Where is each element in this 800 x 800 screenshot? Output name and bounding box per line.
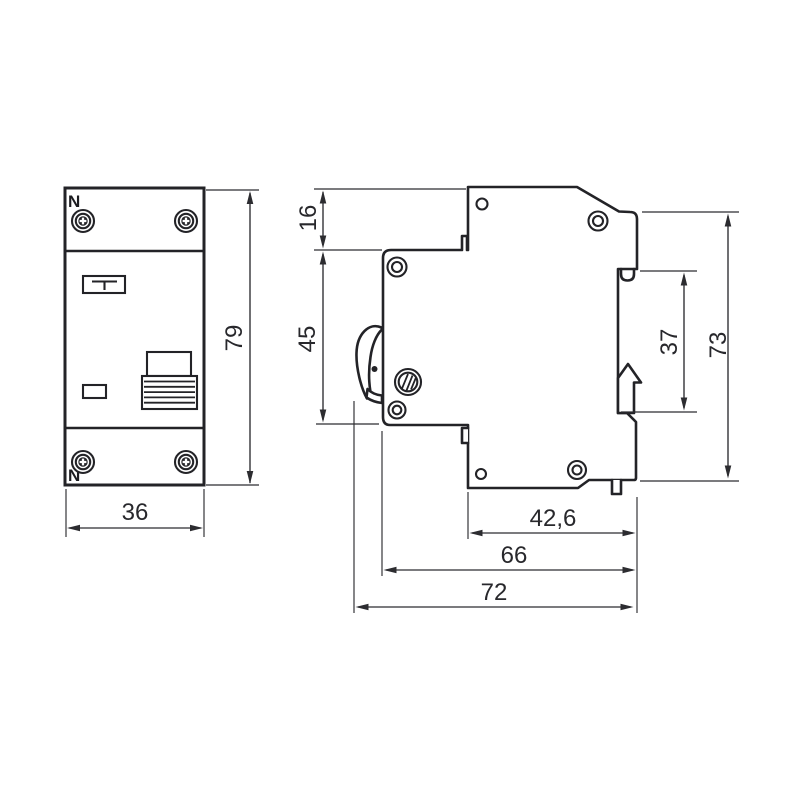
- circuit-breaker-dimension-drawing: N N: [0, 0, 800, 800]
- indicator-window: [83, 385, 106, 398]
- front-section-value: 45: [294, 326, 321, 353]
- rivet-icon: [388, 258, 407, 277]
- toggle-switch-icon: [142, 352, 197, 409]
- front-view: N N: [65, 188, 259, 537]
- dimension-terminal-depth: 42,6: [468, 492, 636, 539]
- side-profile-outline: [383, 187, 637, 488]
- din-clip-release-tab: [612, 480, 621, 494]
- dimension-upper-section: 16: [295, 189, 466, 250]
- terminal-screw-icon: [175, 210, 197, 232]
- rear-height-value: 73: [705, 332, 732, 359]
- dimension-front-height: 79: [206, 190, 259, 485]
- mounting-hole-icon: [477, 199, 488, 210]
- mounting-hole-icon: [476, 469, 486, 479]
- terminal-face-tab: [462, 428, 468, 443]
- upper-section-value: 16: [295, 205, 322, 232]
- front-height-value: 79: [221, 325, 248, 352]
- body-depth-value: 66: [501, 542, 528, 569]
- test-button-icon: [83, 276, 125, 293]
- calibration-screw-icon: [395, 369, 421, 395]
- terminal-screw-icon: [72, 210, 94, 232]
- din-clip-arrow-icon: [618, 364, 641, 413]
- technical-drawing-page: N N: [0, 0, 800, 800]
- rivet-icon: [568, 461, 586, 479]
- dimension-front-width: 36: [66, 489, 204, 537]
- neutral-label-top: N: [68, 192, 80, 211]
- front-width-value: 36: [122, 499, 149, 526]
- rivet-icon: [589, 212, 608, 231]
- terminal-screw-icon: [175, 451, 197, 473]
- lever-pivot-dot: [372, 366, 378, 372]
- rivet-icon: [389, 402, 406, 419]
- side-view: 16 45 37 73: [294, 187, 739, 613]
- terminal-depth-value: 42,6: [530, 505, 577, 532]
- terminal-screw-icon: [72, 451, 94, 473]
- overall-depth-value: 72: [481, 579, 508, 606]
- side-toggle-lever: [356, 326, 382, 403]
- dimension-rear-height: 73: [640, 212, 739, 481]
- din-slot-hook: [621, 269, 634, 281]
- din-slot-value: 37: [656, 329, 683, 356]
